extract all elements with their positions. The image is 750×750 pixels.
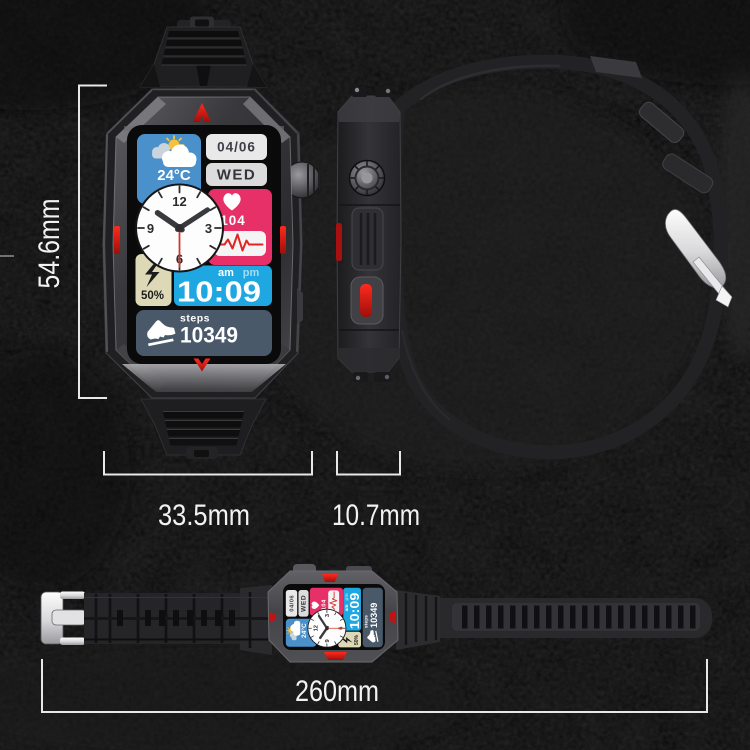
- svg-text:54.6mm: 54.6mm: [33, 199, 66, 289]
- svg-text:33.5mm: 33.5mm: [158, 499, 250, 532]
- svg-text:260mm: 260mm: [295, 675, 379, 708]
- svg-text:10.7mm: 10.7mm: [332, 499, 420, 532]
